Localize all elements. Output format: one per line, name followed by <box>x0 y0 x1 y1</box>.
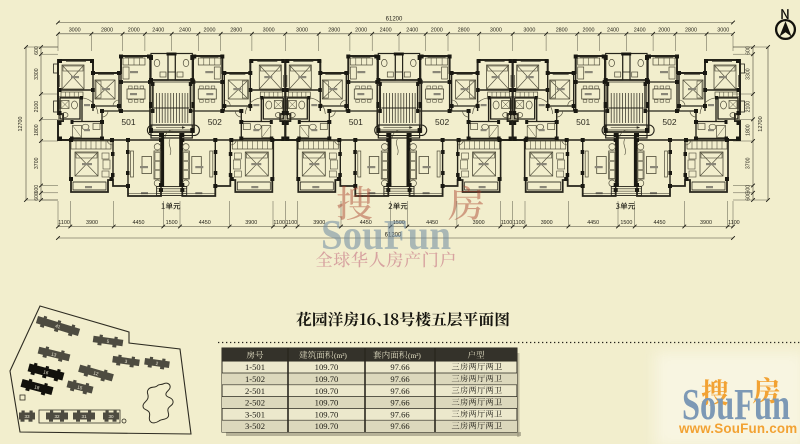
svg-text:1800: 1800 <box>745 124 751 136</box>
svg-text:97.66: 97.66 <box>390 362 410 372</box>
svg-text:3900: 3900 <box>700 220 712 226</box>
svg-text:109.70: 109.70 <box>315 374 339 384</box>
svg-text:www.SouFun.com: www.SouFun.com <box>678 421 797 436</box>
svg-text:3900: 3900 <box>245 220 257 226</box>
svg-text:1100: 1100 <box>513 220 525 226</box>
svg-text:501: 501 <box>576 117 590 127</box>
svg-text:502: 502 <box>662 117 676 127</box>
svg-text:3300: 3300 <box>745 68 751 80</box>
svg-text:(m²): (m²) <box>334 351 347 360</box>
svg-text:1100: 1100 <box>58 220 70 226</box>
svg-text:3900: 3900 <box>541 220 553 226</box>
svg-text:501: 501 <box>349 117 363 127</box>
svg-text:33: 33 <box>24 414 30 419</box>
svg-text:12700: 12700 <box>18 117 24 132</box>
svg-text:97.66: 97.66 <box>390 386 410 396</box>
svg-text:109.70: 109.70 <box>315 362 339 372</box>
svg-text:2800: 2800 <box>556 27 568 33</box>
svg-text:3000: 3000 <box>69 27 81 33</box>
svg-text:3000: 3000 <box>263 27 275 33</box>
svg-text:32: 32 <box>54 414 60 419</box>
svg-text:1500: 1500 <box>620 220 632 226</box>
svg-text:109.70: 109.70 <box>315 409 339 419</box>
svg-text:97.66: 97.66 <box>390 421 410 431</box>
svg-text:3000: 3000 <box>490 27 502 33</box>
svg-text:2400: 2400 <box>380 27 392 33</box>
svg-text:109.70: 109.70 <box>315 398 339 408</box>
svg-text:3700: 3700 <box>745 157 751 169</box>
svg-text:2000: 2000 <box>204 27 216 33</box>
svg-text:109.70: 109.70 <box>315 421 339 431</box>
svg-text:97.66: 97.66 <box>390 374 410 384</box>
svg-text:502: 502 <box>208 117 222 127</box>
svg-text:2800: 2800 <box>101 27 113 33</box>
svg-text:(m²): (m²) <box>408 351 421 360</box>
svg-text:2100: 2100 <box>745 101 751 113</box>
svg-text:2800: 2800 <box>458 27 470 33</box>
svg-text:2400: 2400 <box>634 27 646 33</box>
svg-text:3300: 3300 <box>34 68 40 80</box>
svg-text:1100: 1100 <box>286 220 298 226</box>
svg-text:2400: 2400 <box>607 27 619 33</box>
svg-text:61200: 61200 <box>386 16 403 22</box>
svg-text:4450: 4450 <box>199 220 211 226</box>
svg-text:2000: 2000 <box>431 27 443 33</box>
svg-text:502: 502 <box>435 117 449 127</box>
svg-text:600: 600 <box>745 192 751 201</box>
svg-text:1-501: 1-501 <box>245 362 265 372</box>
svg-text:4450: 4450 <box>654 220 666 226</box>
svg-text:2000: 2000 <box>355 27 367 33</box>
svg-text:2100: 2100 <box>34 101 40 113</box>
svg-text:1-502: 1-502 <box>245 374 265 384</box>
svg-text:2400: 2400 <box>152 27 164 33</box>
svg-text:3700: 3700 <box>34 157 40 169</box>
svg-text:600: 600 <box>34 192 40 201</box>
svg-text:2400: 2400 <box>406 27 418 33</box>
svg-text:2-501: 2-501 <box>245 386 265 396</box>
svg-text:3900: 3900 <box>86 220 98 226</box>
svg-text:2000: 2000 <box>583 27 595 33</box>
svg-text:2800: 2800 <box>328 27 340 33</box>
svg-text:4450: 4450 <box>587 220 599 226</box>
svg-text:31: 31 <box>81 414 87 419</box>
svg-text:3000: 3000 <box>523 27 535 33</box>
svg-text:3-502: 3-502 <box>245 421 265 431</box>
svg-text:2000: 2000 <box>128 27 140 33</box>
svg-text:4450: 4450 <box>133 220 145 226</box>
svg-text:97.66: 97.66 <box>390 398 410 408</box>
svg-text:1100: 1100 <box>273 220 285 226</box>
svg-text:30: 30 <box>108 414 114 419</box>
svg-text:2000: 2000 <box>658 27 670 33</box>
svg-text:109.70: 109.70 <box>315 386 339 396</box>
svg-text:12700: 12700 <box>758 116 764 132</box>
svg-text:2800: 2800 <box>685 27 697 33</box>
svg-text:SouFun: SouFun <box>321 213 451 259</box>
svg-text:600: 600 <box>745 46 751 55</box>
svg-text:3-501: 3-501 <box>245 409 265 419</box>
svg-text:501: 501 <box>121 117 135 127</box>
svg-text:1500: 1500 <box>166 220 178 226</box>
svg-text:3000: 3000 <box>717 27 729 33</box>
svg-text:2-502: 2-502 <box>245 398 265 408</box>
svg-text:2800: 2800 <box>230 27 242 33</box>
svg-text:600: 600 <box>34 46 40 55</box>
svg-text:2400: 2400 <box>179 27 191 33</box>
svg-text:3900: 3900 <box>473 220 485 226</box>
svg-text:97.66: 97.66 <box>390 409 410 419</box>
svg-text:1100: 1100 <box>501 220 513 226</box>
svg-text:3000: 3000 <box>296 27 308 33</box>
svg-text:1800: 1800 <box>34 124 40 136</box>
